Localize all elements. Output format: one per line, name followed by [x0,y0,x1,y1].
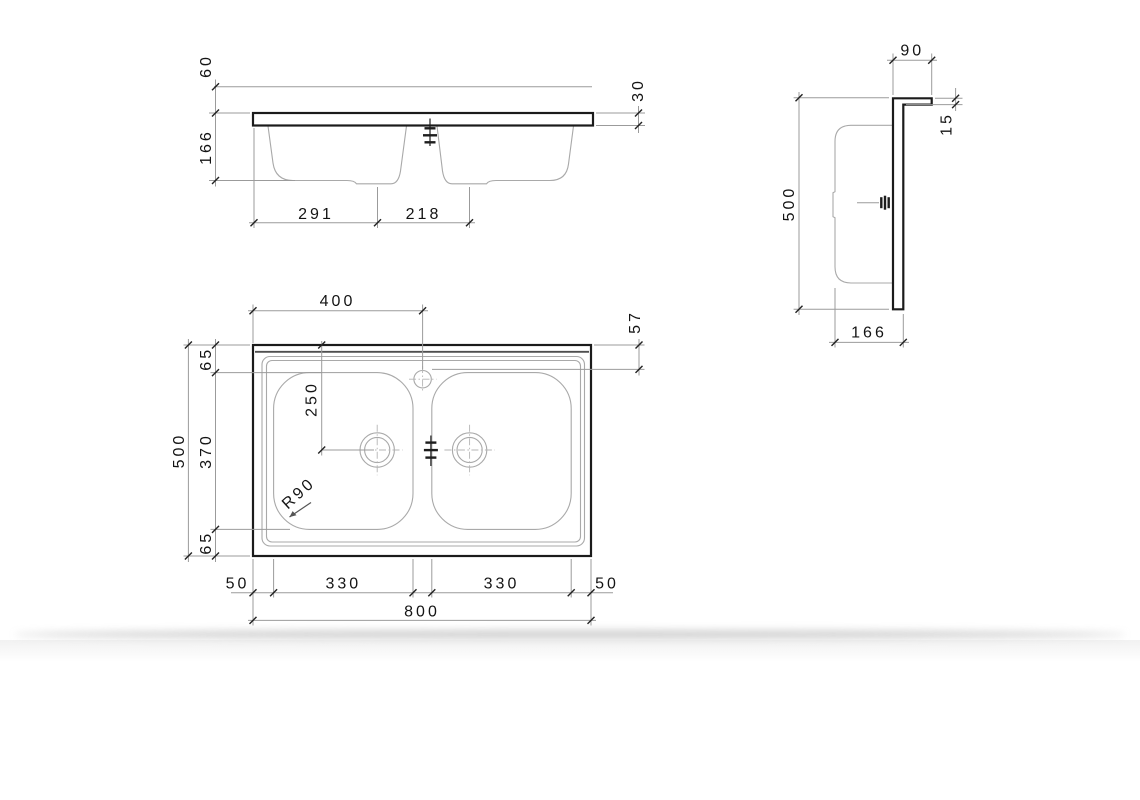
plan-dim-label-330-right: 330 [484,576,520,593]
plan-dim-label-50-left: 50 [226,576,250,593]
plan-dim-bottom: 50 330 330 50 800 [226,559,619,626]
plan-dim-label-50-right: 50 [595,576,619,593]
side-dim-90: 90 [887,43,937,96]
overflow-mark-side [857,196,889,210]
front-dim-label-291: 291 [298,206,334,223]
ground-shadow-fade [0,640,1140,662]
plan-dim-label-400: 400 [320,293,356,310]
front-dim-label-30: 30 [630,78,647,102]
side-dim-label-500: 500 [781,186,798,222]
plan-view: 400 57 500 65 [171,293,645,626]
sink-technical-drawing: 60 166 30 291 218 [0,0,1140,800]
front-left-bowl-outline [268,126,407,184]
plan-outer-edge [253,345,591,556]
front-right-bowl-outline [437,126,574,184]
plan-dim-label-57: 57 [627,310,644,334]
plan-dim-label-500: 500 [171,433,188,469]
plan-dim-label-370: 370 [198,433,215,469]
plan-dim-label-330-left: 330 [325,576,361,593]
front-dim-30: 30 [596,78,647,133]
front-dim-label-218: 218 [406,206,442,223]
side-dim-label-15: 15 [939,112,956,136]
side-view: 90 15 500 166 [781,43,963,348]
technical-drawing-page: 60 166 30 291 218 [0,0,1140,800]
side-dim-15: 15 [906,88,963,136]
side-bowl-outline [833,125,892,283]
front-slab [253,113,593,126]
side-dim-label-90: 90 [900,43,924,60]
plan-dim-label-65-bottom: 65 [198,531,215,555]
front-view: 60 166 30 291 218 [198,54,647,228]
plan-dim-label-250: 250 [304,381,321,417]
front-dim-label-166: 166 [198,129,215,165]
side-dim-label-166: 166 [851,325,887,342]
ground-shadow [14,630,1126,639]
plan-dim-label-65-top: 65 [198,347,215,371]
side-panel [893,98,932,309]
plan-dim-label-800: 800 [404,604,440,621]
front-dim-label-60: 60 [198,54,215,78]
